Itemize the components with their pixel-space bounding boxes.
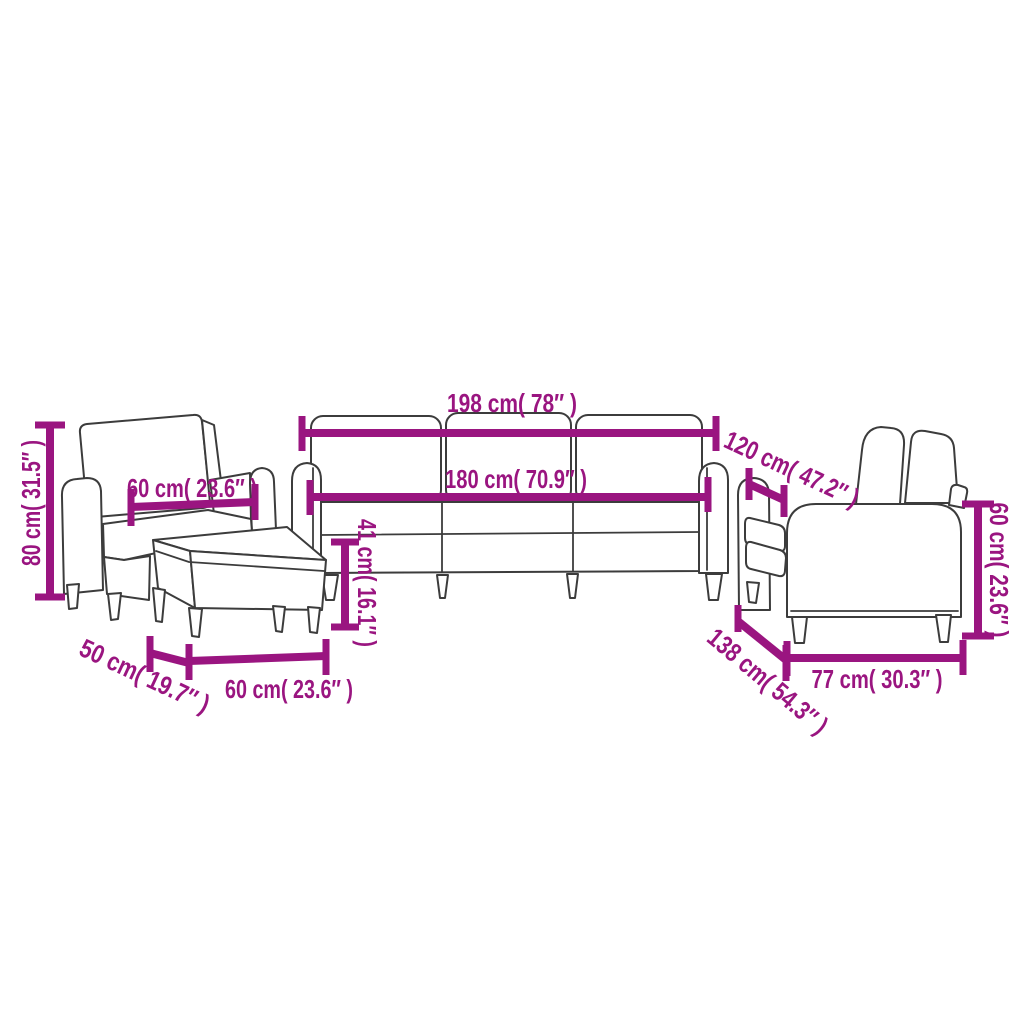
sofa-overall-width-label: 198 cm( 78″ ) [447, 388, 577, 418]
footstool-depth-dimension: 50 cm( 19.7″ ) [75, 633, 215, 719]
footstool-width-dimension: 60 cm( 23.6″ ) [189, 639, 353, 704]
sofa-leg [567, 574, 578, 598]
sofa-right-armrest [699, 463, 728, 573]
footstool-leg [308, 607, 320, 633]
sofa-leg [437, 575, 448, 598]
sofa-back-cushion-right [576, 415, 702, 502]
armchair-leg [67, 584, 79, 609]
two-seater-height-label: 60 cm( 23.6″ ) [984, 503, 1014, 638]
two-seater-leg [936, 615, 951, 642]
sofa-back-cushion-left [311, 416, 441, 502]
armchair-leg [108, 593, 121, 620]
armchair-height-dimension: 80 cm( 31.5″ ) [16, 425, 65, 597]
armchair-width-label: 60 cm( 23.6″ ) [127, 473, 257, 503]
armchair-height-label: 80 cm( 31.5″ ) [16, 440, 46, 566]
footstool-leg [153, 588, 165, 622]
footstool-front-face [190, 551, 326, 610]
two-seater-width-label: 77 cm( 30.3″ ) [812, 664, 943, 694]
footstool-depth-label: 50 cm( 19.7″ ) [75, 633, 215, 719]
sofa-seat-width-label: 180 cm( 70.9″ ) [445, 464, 587, 494]
two-seater-back-cushion-front [856, 427, 904, 504]
footstool-width-label: 60 cm( 23.6″ ) [225, 674, 353, 704]
sofa-leg [706, 574, 722, 600]
two-seater-width-dimension: 77 cm( 30.3″ ) [787, 640, 963, 694]
footstool [153, 527, 326, 637]
two-seater-height-dimension: 60 cm( 23.6″ ) [962, 503, 1014, 638]
footstool-leg [189, 608, 202, 637]
sofa-set-dimension-diagram: 80 cm( 31.5″ ) 60 cm( 23.6″ ) 50 cm( 19.… [0, 0, 1024, 1024]
armchair-left-armrest [62, 478, 103, 594]
sofa-seat-height-label: 41 cm( 16.1″ ) [352, 519, 382, 647]
two-seater-rear-leg [747, 582, 759, 603]
two-seater-leg [792, 617, 807, 643]
footstool-leg [273, 606, 285, 632]
two-seater-side-panel [787, 504, 961, 617]
